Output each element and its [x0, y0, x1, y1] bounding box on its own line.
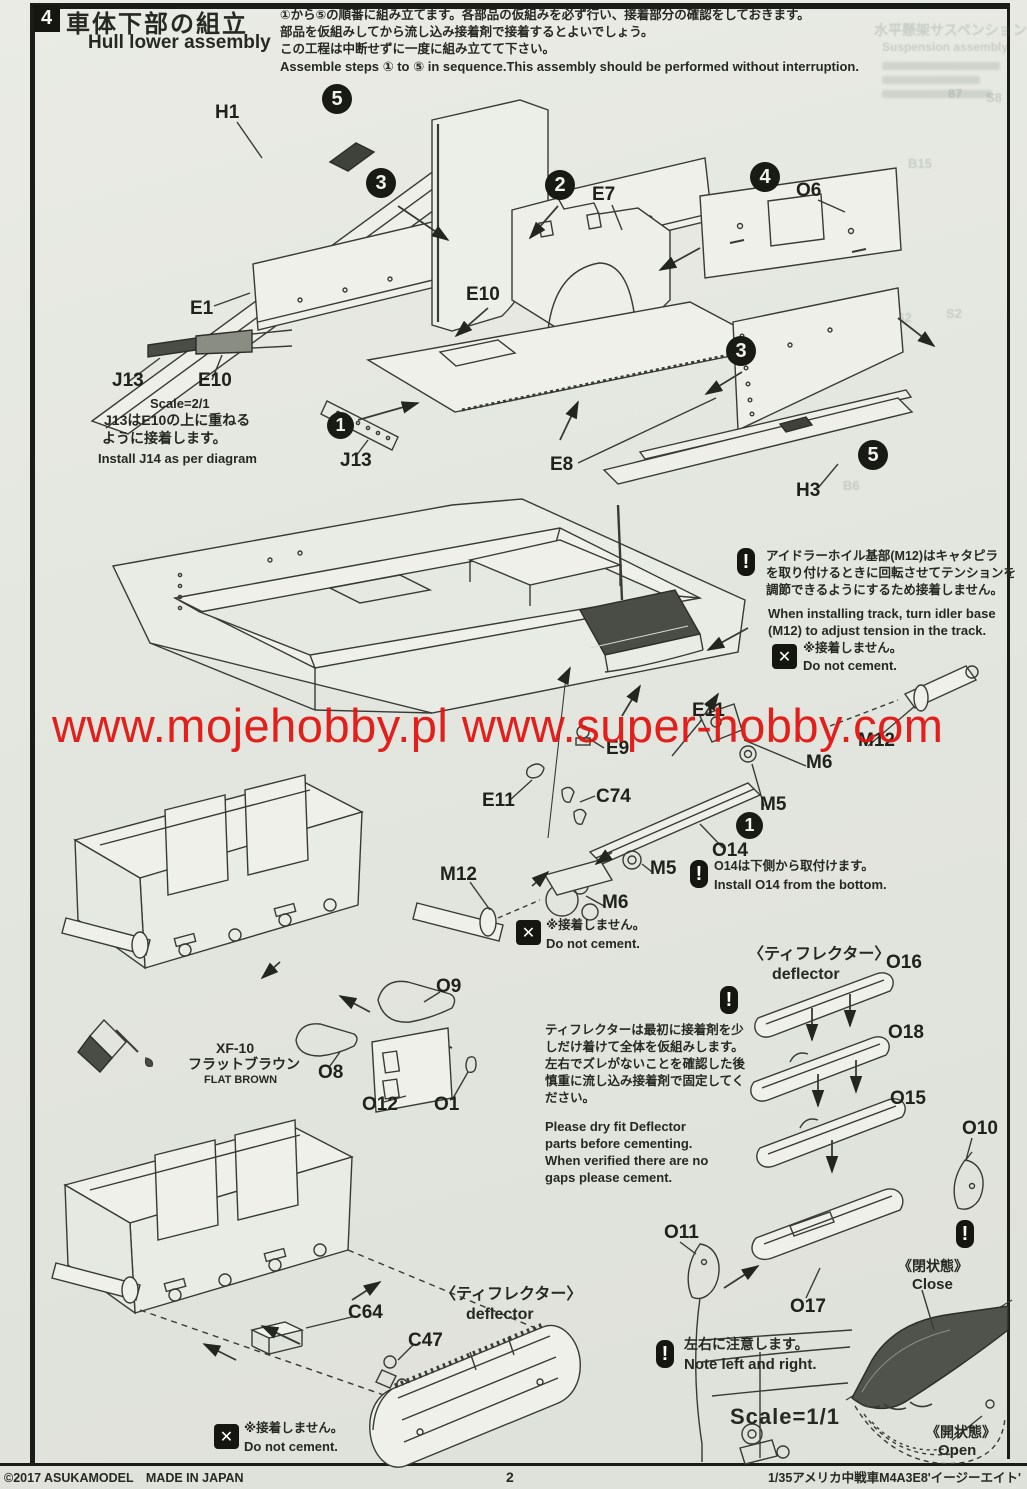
intro-line-jp-3: この工程は中断せずに一度に組み立てて下さい。 — [280, 41, 555, 58]
attention-icon: ! — [720, 986, 738, 1014]
shop-watermark: www.mojehobby.pl www.super-hobby.com — [52, 698, 943, 753]
deflector-note-jp-2: しだけ着けて全体を仮組みします。 — [545, 1039, 744, 1056]
part-label-o17: O17 — [790, 1296, 826, 1318]
do-not-cement-en: Do not cement. — [803, 657, 897, 674]
idler-note-jp-1: アイドラーホイル基部(M12)はキャタピラ — [766, 548, 998, 565]
step-badge-2: 2 — [545, 170, 575, 200]
do-not-cement-icon: ✕ — [214, 1424, 239, 1449]
part-label-m5-bottom: M5 — [650, 858, 676, 880]
open-state-en: Open — [938, 1442, 976, 1459]
part-label-o18: O18 — [888, 1022, 924, 1044]
do-not-cement-jp: ※接着しません。 — [803, 640, 902, 657]
art-main-hull — [113, 499, 748, 722]
part-label-o1: O1 — [434, 1094, 459, 1116]
deflector-note-jp-4: 慎重に流し込み接着剤で固定してく — [545, 1073, 744, 1090]
deflector-note-en-1: Please dry fit Deflector — [545, 1118, 686, 1135]
do-not-cement-jp: ※接着しません。 — [546, 917, 645, 934]
paint-name-jp: フラットブラウン — [188, 1056, 300, 1073]
open-state-jp: 《開状態》 — [926, 1424, 996, 1441]
o14-note-en: Install O14 from the bottom. — [714, 876, 887, 893]
footer-page-number: 2 — [506, 1469, 514, 1486]
deflector-title-en-bottom: deflector — [466, 1306, 534, 1323]
part-label-e10-top: E10 — [466, 284, 500, 306]
do-not-cement-en: Do not cement. — [244, 1438, 338, 1455]
step-badge-3-right: 3 — [726, 336, 756, 366]
part-label-o6: O6 — [796, 180, 821, 202]
intro-line-en: Assemble steps ① to ⑤ in sequence.This a… — [280, 58, 859, 75]
part-label-c74: C74 — [596, 786, 631, 808]
step-badge-1: 1 — [327, 412, 354, 439]
j13-note-en: Install J14 as per diagram — [98, 450, 257, 467]
close-state-en: Close — [912, 1276, 953, 1293]
part-label-e8: E8 — [550, 454, 573, 476]
step-badge-1-o14: 1 — [736, 812, 763, 839]
part-label-m5-top: M5 — [760, 794, 786, 816]
instruction-sheet-page: 水平懸架サスペンション Suspension assembly B15 87 S… — [0, 0, 1027, 1489]
part-label-m12-left: M12 — [440, 864, 477, 886]
deflector-title-jp-bottom: 〈ティフレクター〉 — [440, 1286, 582, 1303]
part-label-m6-top: M6 — [806, 752, 832, 774]
part-label-h1: H1 — [215, 102, 239, 124]
part-label-o10: O10 — [962, 1118, 998, 1140]
part-label-h3: H3 — [796, 480, 820, 502]
scale-2-1: Scale=2/1 — [150, 396, 210, 411]
deflector-title-en: deflector — [772, 966, 840, 983]
step-badge-3: 3 — [366, 168, 396, 198]
do-not-cement-jp: ※接着しません。 — [244, 1420, 343, 1437]
part-label-j13-strip: J13 — [340, 450, 372, 472]
idler-note-jp-2: を取り付けるときに回転させてテンションを — [766, 565, 1016, 582]
deflector-title-jp: 〈ティフレクター〉 — [748, 946, 890, 963]
close-state-jp: 《閉状態》 — [898, 1258, 968, 1275]
attention-icon: ! — [690, 860, 708, 888]
part-label-o16: O16 — [886, 952, 922, 974]
part-label-c47: C47 — [408, 1330, 443, 1352]
part-label-o15: O15 — [890, 1088, 926, 1110]
scale-1-1: Scale=1/1 — [730, 1404, 840, 1430]
idler-note-en-2: (M12) to adjust tension in the track. — [768, 622, 986, 639]
deflector-note-en-3: When verified there are no — [545, 1152, 708, 1169]
step-badge-4: 4 — [750, 162, 780, 192]
paint-name-en: FLAT BROWN — [204, 1072, 277, 1089]
attention-icon: ! — [737, 548, 755, 576]
j13-note-jp-1: J13はE10の上に重ねる — [104, 412, 250, 429]
o14-note-jp: O14は下側から取付けます。 — [714, 858, 874, 875]
part-label-e1: E1 — [190, 298, 213, 320]
deflector-note-jp-3: 左右でズレがないことを確認した後 — [545, 1056, 745, 1073]
footer-copyright: ©2017 ASUKAMODEL MADE IN JAPAN — [4, 1470, 244, 1487]
part-label-o9: O9 — [436, 976, 461, 998]
attention-icon: ! — [956, 1220, 974, 1248]
attention-icon: ! — [656, 1340, 674, 1368]
part-label-o12: O12 — [362, 1094, 398, 1116]
deflector-note-jp-1: ティフレクターは最初に接着剤を少 — [545, 1022, 744, 1039]
part-label-j13-mini: J13 — [112, 370, 144, 392]
part-label-e11-left: E11 — [482, 790, 515, 812]
intro-line-jp-2: 部品を仮組みしてから流し込み接着剤で接着するとよいでしょう。 — [280, 24, 654, 41]
deflector-note-en-2: parts before cementing. — [545, 1135, 692, 1152]
idler-note-jp-3: 調節できるようにするため接着しません。 — [766, 582, 1003, 599]
do-not-cement-icon: ✕ — [516, 920, 541, 945]
part-label-e7: E7 — [592, 184, 615, 206]
section-title-en: Hull lower assembly — [88, 32, 271, 54]
do-not-cement-en: Do not cement. — [546, 935, 640, 952]
deflector-note-jp-5: ださい。 — [545, 1090, 595, 1107]
part-label-m6-bottom: M6 — [602, 892, 628, 914]
do-not-cement-icon: ✕ — [772, 644, 797, 669]
part-label-e10-mini: E10 — [198, 370, 232, 392]
part-label-o8: O8 — [318, 1062, 343, 1084]
j13-note-jp-2: ように接着します。 — [102, 430, 227, 447]
step-badge-5: 5 — [322, 84, 352, 114]
part-label-o11: O11 — [664, 1222, 699, 1244]
footer-kit-name: 1/35アメリカ中戦車M4A3E8'イージーエイト' — [768, 1470, 1021, 1487]
part-label-c64: C64 — [348, 1302, 383, 1324]
left-right-note-jp: 左右に注意します。 — [684, 1336, 809, 1353]
section-number: 4 — [33, 5, 60, 32]
intro-line-jp-1: ①から⑤の順番に組み立てます。各部品の仮組みを必ず行い、接着部分の確認をしておき… — [280, 7, 810, 24]
step-badge-5-right: 5 — [858, 440, 888, 470]
deflector-note-en-4: gaps please cement. — [545, 1169, 672, 1186]
paint-code: XF-10 — [216, 1040, 254, 1057]
left-right-note-en: Note left and right. — [684, 1356, 817, 1373]
idler-note-en-1: When installing track, turn idler base — [768, 605, 996, 622]
